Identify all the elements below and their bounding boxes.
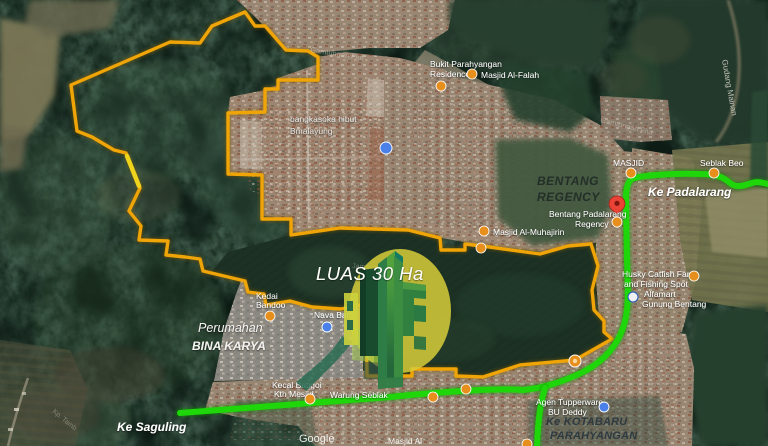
svg-text:Perumahan: Perumahan	[198, 321, 263, 335]
svg-text:Google: Google	[299, 433, 334, 445]
svg-text:Agen Tupperware: Agen Tupperware	[536, 397, 603, 407]
svg-text:Residence: Residence	[430, 69, 470, 79]
svg-text:Alfamart: Alfamart	[644, 289, 676, 299]
svg-text:Masjid Al-Falah: Masjid Al-Falah	[481, 70, 539, 80]
svg-text:bangkasoka hibut: bangkasoka hibut	[290, 114, 357, 124]
svg-text:REGENCY: REGENCY	[537, 190, 600, 204]
svg-text:MASJID: MASJID	[613, 158, 644, 168]
svg-text:Gunung Bentang: Gunung Bentang	[642, 299, 707, 309]
svg-text:LUAS 30 Ha: LUAS 30 Ha	[316, 263, 424, 284]
svg-text:Ke Padalarang: Ke Padalarang	[648, 185, 732, 199]
svg-text:Bmalayung: Bmalayung	[290, 126, 333, 136]
svg-text:Regency: Regency	[575, 219, 609, 229]
svg-text:Masjid Al-Muhajirin: Masjid Al-Muhajirin	[493, 227, 565, 237]
svg-text:Warung Seblak: Warung Seblak	[330, 390, 389, 400]
svg-text:and Fishing Spot: and Fishing Spot	[624, 279, 688, 289]
svg-text:PARAHYANGAN: PARAHYANGAN	[550, 430, 638, 442]
svg-text:Ke Saguling: Ke Saguling	[117, 420, 187, 434]
svg-text:Masjid Al: Masjid Al	[388, 436, 422, 446]
svg-text:BINA KARYA: BINA KARYA	[192, 339, 266, 353]
svg-text:Bandoo: Bandoo	[256, 300, 286, 310]
svg-text:Bukit Parahyangan: Bukit Parahyangan	[430, 59, 502, 69]
svg-text:BENTANG: BENTANG	[537, 174, 599, 188]
svg-text:Husky Catfish Farm: Husky Catfish Farm	[622, 269, 697, 279]
svg-text:Seblak Beo: Seblak Beo	[700, 158, 744, 168]
svg-text:Ke KOTABARU: Ke KOTABARU	[546, 416, 628, 428]
